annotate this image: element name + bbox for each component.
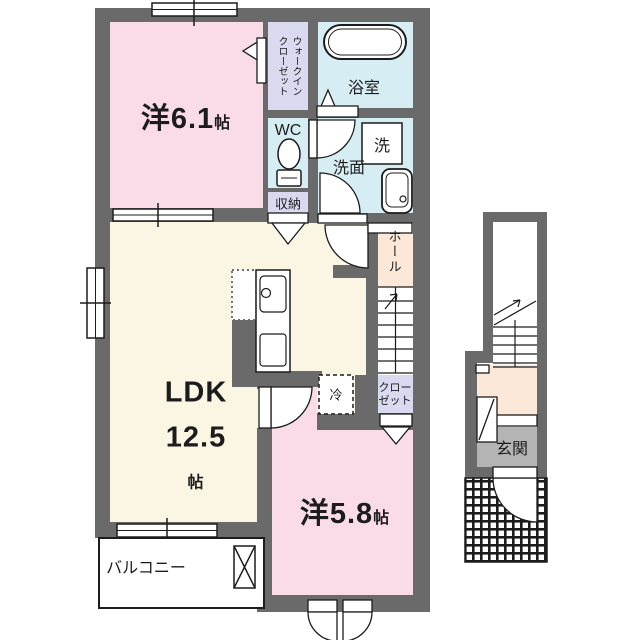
wc-label: WC: [275, 122, 302, 140]
closet-label: クロー ゼット: [379, 382, 412, 408]
entrance-threshold: [493, 415, 537, 426]
kitchen-faucet: [262, 289, 271, 298]
bedroom1-label: 洋6.1帖: [141, 95, 231, 137]
ldk-label: LDK 12.5帖: [165, 371, 228, 506]
walkin-closet-label: ウォークイン クローゼット: [274, 36, 302, 96]
bathroom-label: 浴室: [348, 74, 380, 98]
kitchen-stove: [260, 334, 286, 366]
balcony-label: バルコニー: [106, 554, 186, 578]
shoe-cabinet-icon: [477, 397, 497, 442]
kitchen-counter: [232, 270, 290, 372]
entrance-step: [476, 365, 489, 373]
kitchen-wall-block: [232, 320, 256, 371]
bathtub-icon: [324, 25, 406, 59]
storage-label: 収納: [275, 194, 301, 213]
kitchen-cabinet-dashed: [232, 270, 256, 320]
entrance-label: 玄関: [496, 435, 528, 459]
hall-label: ホール: [385, 230, 404, 275]
washer-label: 洗: [374, 132, 390, 156]
bedroom2-label: 洋5.8帖: [300, 490, 390, 532]
washroom-label: 洗面: [333, 154, 365, 178]
sink-icon: [382, 169, 412, 213]
entrance-plan: [465, 212, 547, 562]
floor-plan: 洋6.1帖 ウォークイン クローゼット WC 収納 浴室 洗 洗面 ホール LD…: [0, 0, 640, 640]
fridge-label: 冷: [329, 385, 342, 404]
balcony-hatch-box: [234, 546, 255, 588]
floor-plan-drawing: [0, 0, 640, 640]
toilet-icon: [277, 139, 301, 186]
